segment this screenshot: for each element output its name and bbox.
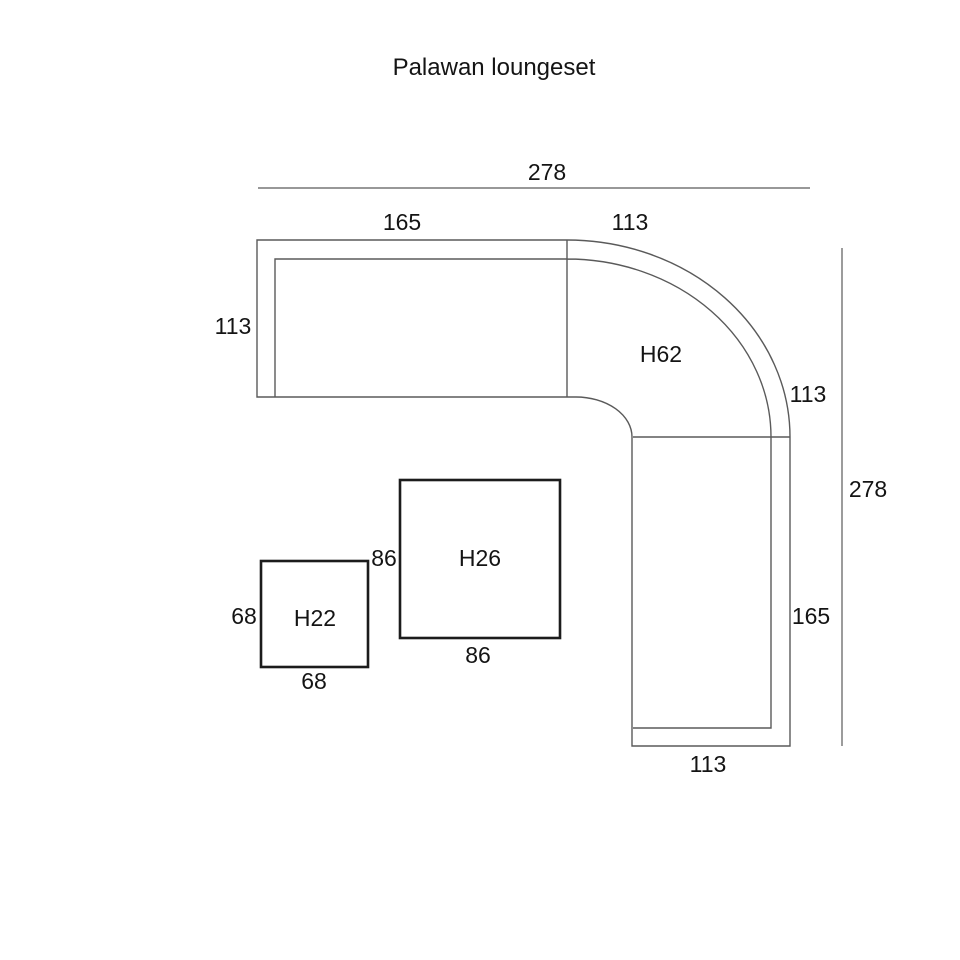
sofa-corner-height-label: H62 — [640, 341, 682, 367]
dim-left-depth: 113 — [215, 313, 252, 339]
table-small-label: H22 — [294, 605, 336, 631]
dim-corner-top: 113 — [612, 209, 649, 235]
dim-total-depth: 278 — [849, 476, 887, 502]
diagram-title: Palawan loungeset — [393, 54, 596, 81]
dim-left-length: 165 — [383, 209, 421, 235]
dim-bottom-width: 113 — [690, 751, 727, 777]
dimension-diagram: Palawan loungeset H62 278 165 113 113 11… — [0, 0, 960, 960]
table-small-width-dim: 68 — [301, 668, 327, 694]
dim-total-width: 278 — [528, 159, 566, 185]
table-large-depth-dim: 86 — [371, 545, 397, 571]
table-small-depth-dim: 68 — [231, 603, 257, 629]
table-large-label: H26 — [459, 545, 501, 571]
dim-corner-right: 113 — [790, 381, 827, 407]
table-large-width-dim: 86 — [465, 642, 491, 668]
dim-right-length: 165 — [792, 603, 830, 629]
dimension-drawing-page: Palawan loungeset H62 278 165 113 113 11… — [0, 0, 960, 960]
